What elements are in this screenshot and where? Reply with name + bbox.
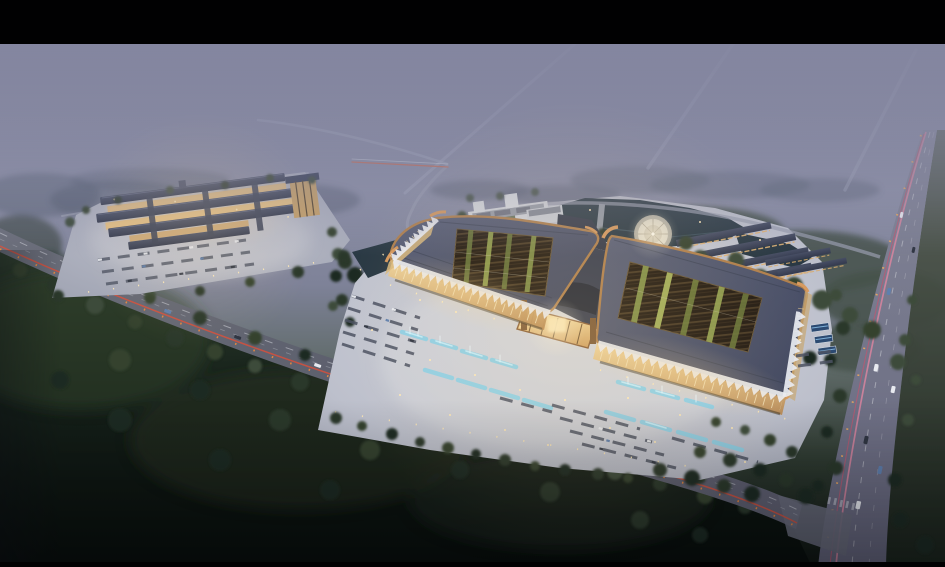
rendering-viewport: Aerial dusk rendering of an exhibition-c…	[0, 0, 945, 567]
left-vignette	[0, 250, 60, 567]
letterbox-bottom	[0, 562, 945, 567]
bottom-vignette	[0, 400, 945, 567]
letterbox-top	[0, 0, 945, 44]
aerial-rendering: Aerial dusk rendering of an exhibition-c…	[0, 0, 945, 567]
